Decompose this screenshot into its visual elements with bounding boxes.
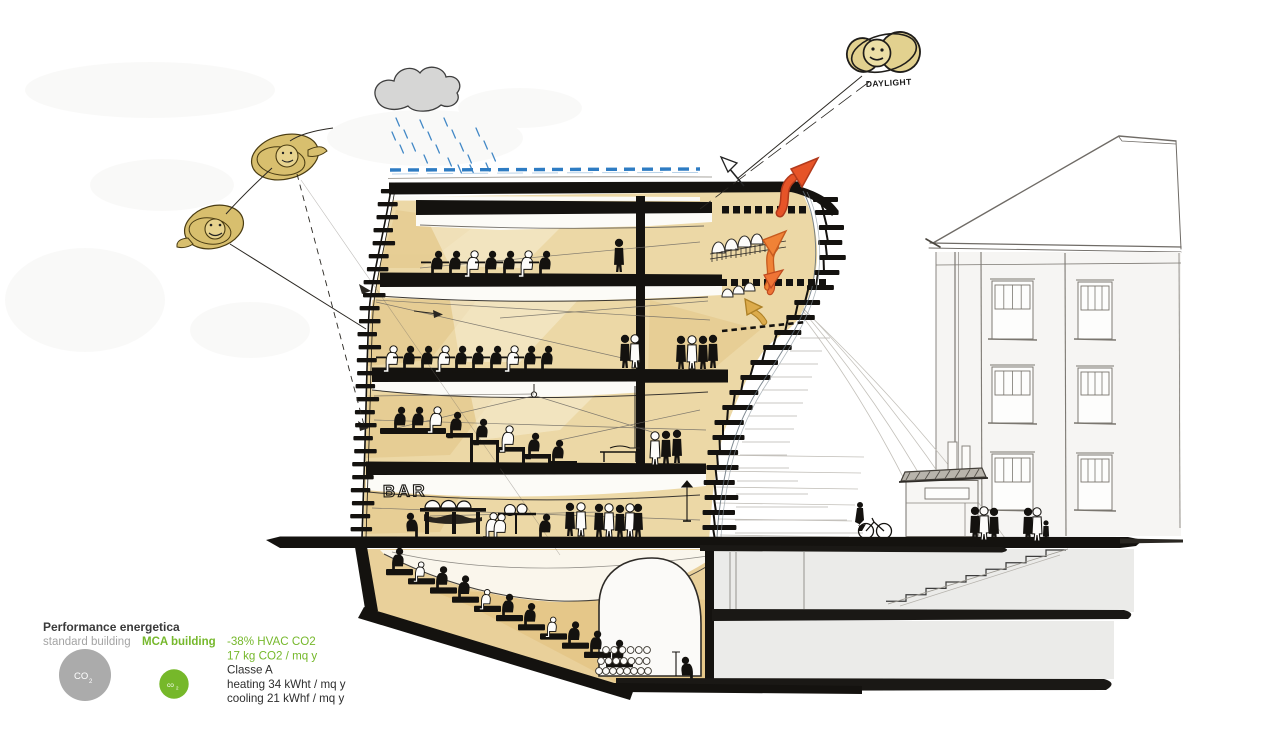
svg-text:standard building: standard building — [43, 636, 131, 648]
svg-text:heating 34 kWht / mq y: heating 34 kWht / mq y — [227, 678, 346, 691]
svg-text:CO: CO — [74, 671, 88, 682]
svg-text:-38% HVAC CO2: -38% HVAC CO2 — [227, 635, 316, 648]
svg-text:17 kg CO2 / mq y: 17 kg CO2 / mq y — [227, 650, 317, 663]
svg-text:Classe A: Classe A — [227, 664, 273, 677]
svg-text:Performance energetica: Performance energetica — [43, 620, 180, 634]
svg-text:co: co — [167, 682, 174, 689]
svg-text:MCA building: MCA building — [142, 636, 216, 648]
svg-text:BAR: BAR — [383, 481, 428, 501]
svg-text:cooling 21 kWhf / mq y: cooling 21 kWhf / mq y — [227, 692, 344, 705]
